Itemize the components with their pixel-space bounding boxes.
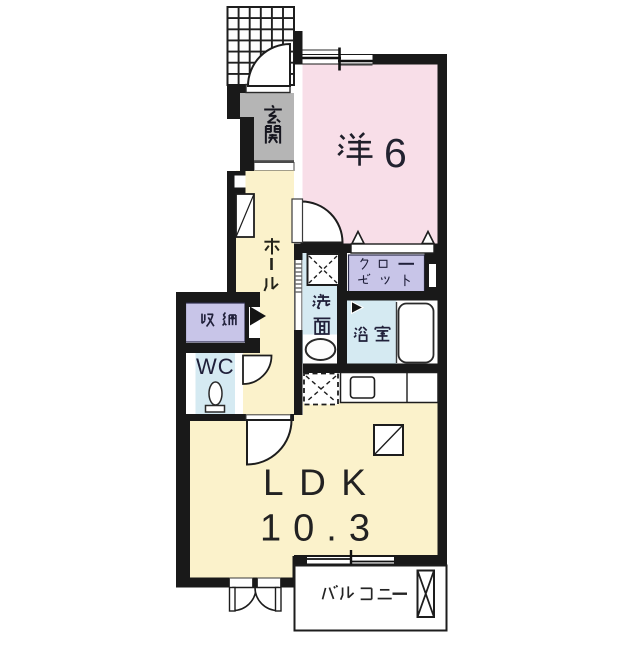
svg-text:LDK: LDK: [263, 462, 381, 503]
svg-text:6: 6: [384, 130, 407, 176]
svg-text:10.3: 10.3: [260, 508, 382, 550]
svg-text:WC: WC: [196, 354, 235, 379]
